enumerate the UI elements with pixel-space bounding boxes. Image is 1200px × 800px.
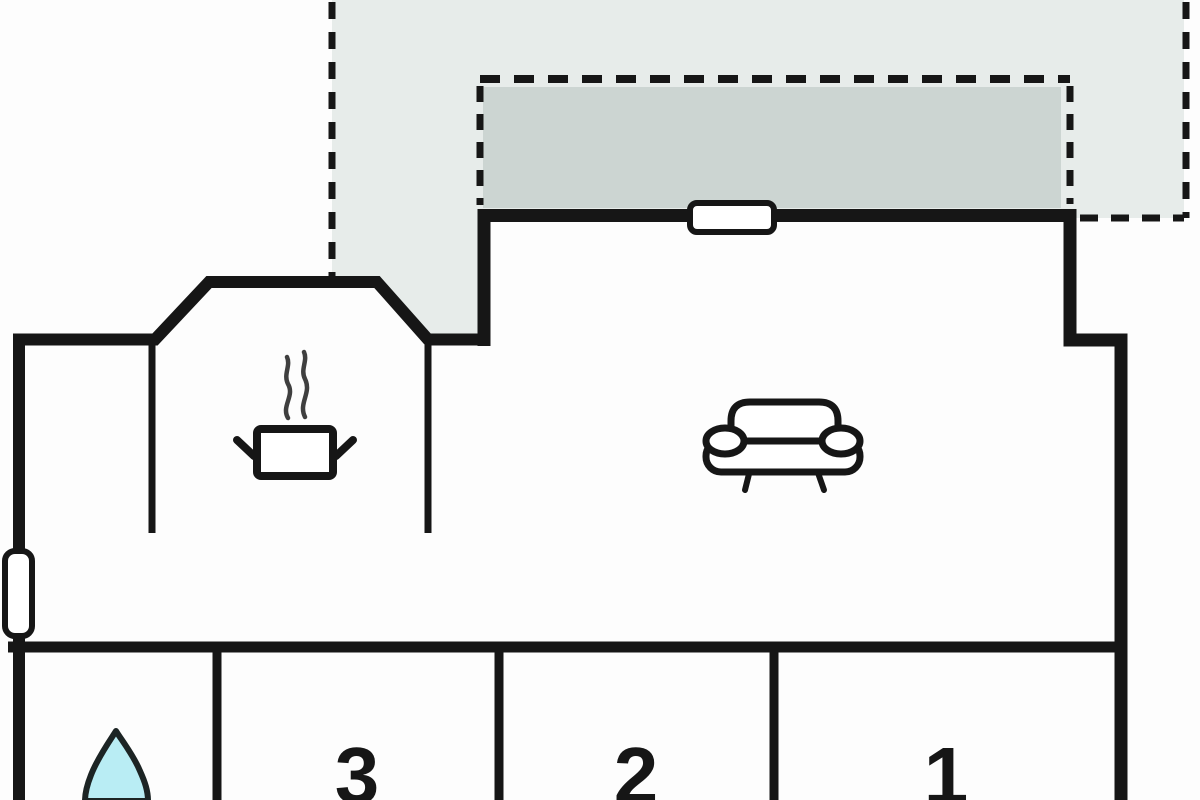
floor-plan: 3 2 1 bbox=[0, 0, 1200, 800]
steam-pot-icon bbox=[237, 352, 353, 476]
wall-north-east bbox=[484, 216, 1121, 800]
sofa-icon bbox=[706, 402, 860, 490]
room-label-1: 1 bbox=[924, 736, 969, 800]
wall-west-kitchen bbox=[19, 282, 490, 800]
water-drop-icon bbox=[85, 731, 148, 800]
room-label-2: 2 bbox=[614, 736, 659, 800]
pot-handle-left bbox=[237, 440, 254, 456]
walls bbox=[8, 216, 1127, 800]
pot-handle-right bbox=[336, 440, 353, 456]
window-marker-left bbox=[5, 551, 32, 636]
sofa-armrest-right bbox=[822, 428, 860, 454]
pot-body bbox=[257, 429, 333, 476]
steam-line bbox=[303, 352, 307, 417]
sofa-armrest-left bbox=[706, 428, 744, 454]
room-label-3: 3 bbox=[335, 736, 380, 800]
floor-plan-svg bbox=[0, 0, 1200, 800]
partition-walls bbox=[152, 345, 774, 800]
steam-line bbox=[286, 357, 290, 418]
terrace-covered-area bbox=[483, 87, 1061, 208]
window-marker-top bbox=[690, 203, 774, 232]
